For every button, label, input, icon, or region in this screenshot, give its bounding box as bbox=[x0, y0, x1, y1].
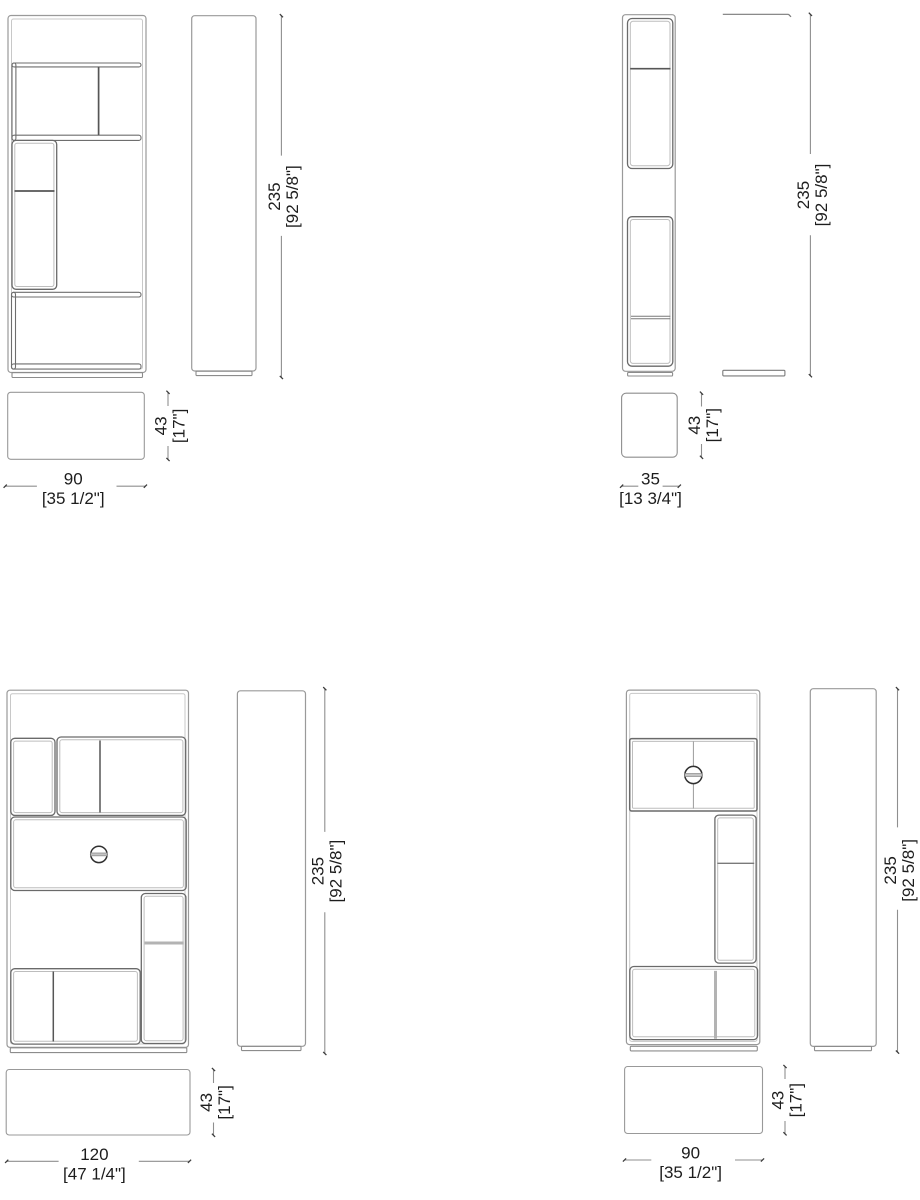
svg-text:235: 235 bbox=[308, 857, 327, 885]
svg-text:[17"]: [17"] bbox=[787, 1083, 806, 1117]
svg-text:[92 5/8"]: [92 5/8"] bbox=[899, 839, 918, 902]
svg-text:[17"]: [17"] bbox=[703, 408, 722, 442]
svg-text:[92 5/8"]: [92 5/8"] bbox=[812, 164, 831, 227]
svg-text:[47 1/4"]: [47 1/4"] bbox=[63, 1164, 126, 1183]
svg-text:235: 235 bbox=[794, 181, 813, 209]
svg-text:[17"]: [17"] bbox=[215, 1085, 234, 1119]
svg-text:43: 43 bbox=[152, 416, 171, 435]
svg-text:235: 235 bbox=[881, 856, 900, 884]
svg-text:[17"]: [17"] bbox=[170, 409, 189, 443]
svg-text:43: 43 bbox=[769, 1091, 788, 1110]
svg-text:[35 1/2"]: [35 1/2"] bbox=[42, 489, 105, 508]
svg-text:90: 90 bbox=[64, 470, 83, 489]
svg-text:235: 235 bbox=[265, 182, 284, 210]
svg-text:[13 3/4"]: [13 3/4"] bbox=[619, 489, 682, 508]
svg-text:[35 1/2"]: [35 1/2"] bbox=[659, 1163, 722, 1182]
svg-text:43: 43 bbox=[685, 416, 704, 435]
svg-text:[92 5/8"]: [92 5/8"] bbox=[326, 840, 345, 903]
svg-text:[92 5/8"]: [92 5/8"] bbox=[283, 165, 302, 228]
svg-text:35: 35 bbox=[641, 470, 660, 489]
svg-text:90: 90 bbox=[681, 1144, 700, 1163]
svg-text:120: 120 bbox=[80, 1145, 108, 1164]
svg-text:43: 43 bbox=[197, 1093, 216, 1112]
